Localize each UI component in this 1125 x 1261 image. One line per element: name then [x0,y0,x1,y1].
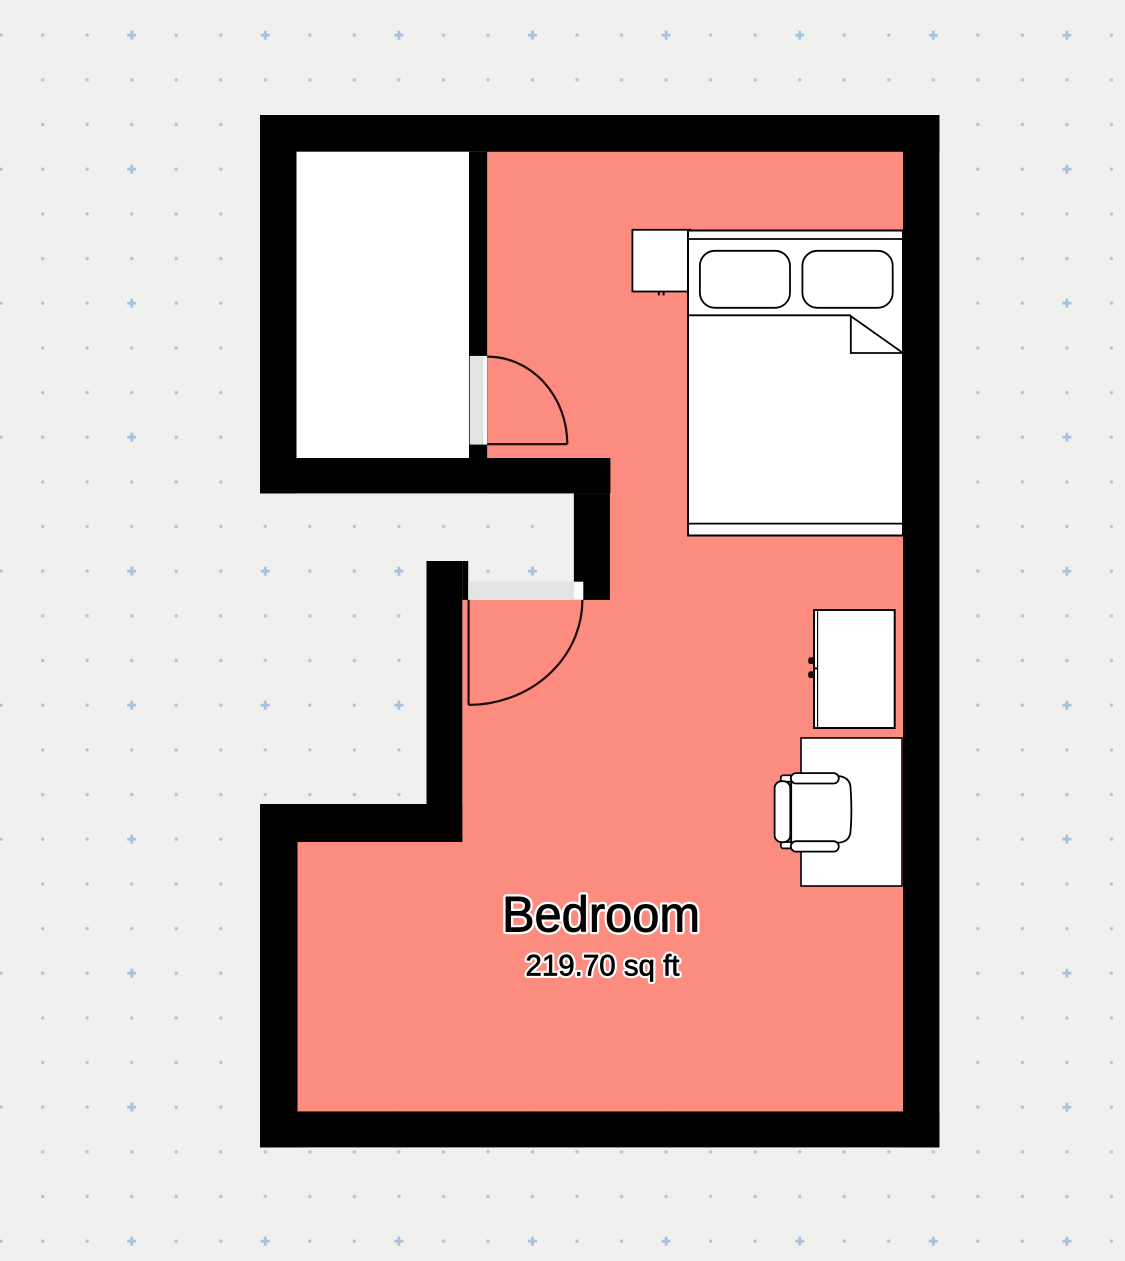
svg-text:219.70 sq ft: 219.70 sq ft [526,949,680,982]
svg-text:Bedroom: Bedroom [502,887,700,943]
